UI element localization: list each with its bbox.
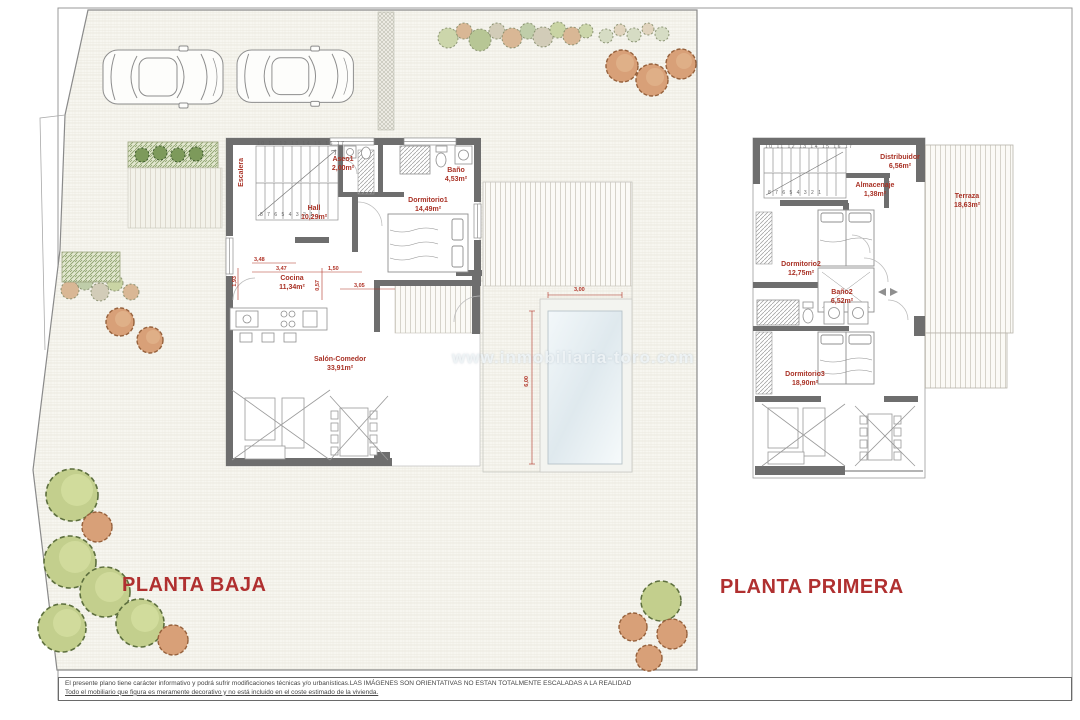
- footer-disclaimer-box: El presente plano tiene carácter informa…: [58, 677, 1072, 701]
- dim-label: 3,47: [276, 266, 287, 272]
- room-area: 6,56m²: [868, 162, 932, 171]
- stair-numbers-top-first: 10 11 12 13 14 15 16 17: [765, 144, 853, 150]
- room-label-bano: Baño 4,53m²: [428, 166, 484, 184]
- room-area: 2,00m²: [316, 164, 370, 173]
- dim-label: 1,93: [232, 276, 238, 287]
- room-area: 6,52m²: [814, 297, 870, 306]
- room-label-dormitorio2: Dormitorio2 12,75m²: [768, 260, 834, 278]
- room-area: 11,34m²: [262, 283, 322, 292]
- room-area: 4,53m²: [428, 175, 484, 184]
- room-area: 1,38m²: [844, 190, 906, 199]
- footer-line-2: Todo el mobiliario que figura es meramen…: [65, 689, 1071, 698]
- watermark: www.inmobiliaria-toro.com: [452, 348, 695, 368]
- stair-numbers-top-ground: 10 11 12 13 14 15 16 17: [257, 141, 345, 147]
- room-area: 12,75m²: [768, 269, 834, 278]
- room-area: 18,90m²: [772, 379, 838, 388]
- pool-length-dim: 6,00: [524, 376, 530, 387]
- room-name: Salón-Comedor: [294, 355, 386, 364]
- room-name: Dormitorio1: [390, 196, 466, 205]
- room-area: 14,49m²: [390, 205, 466, 214]
- title-planta-baja: PLANTA BAJA: [122, 574, 266, 597]
- room-name: Baño2: [814, 288, 870, 297]
- room-label-salon: Salón-Comedor 33,91m²: [294, 355, 386, 373]
- dim-label: 0,57: [315, 280, 321, 291]
- room-label-aseo: Aseo1 2,00m²: [316, 155, 370, 173]
- footer-line-1: El presente plano tiene carácter informa…: [65, 680, 1071, 689]
- room-area: 33,91m²: [294, 364, 386, 373]
- dim-label: 1,50: [328, 266, 339, 272]
- room-name: Dormitorio3: [772, 370, 838, 379]
- title-planta-primera: PLANTA PRIMERA: [720, 576, 904, 599]
- room-label-terraza: Terraza 18,63m²: [934, 192, 1000, 210]
- room-label-bano2: Baño2 6,52m²: [814, 288, 870, 306]
- room-name: Aseo1: [316, 155, 370, 164]
- room-label-almacenaje: Almacenaje 1,38m²: [844, 181, 906, 199]
- room-name: Baño: [428, 166, 484, 175]
- room-label-dormitorio3: Dormitorio3 18,90m²: [772, 370, 838, 388]
- room-label-escalera: Escalera: [238, 158, 245, 187]
- dim-label: 3,05: [354, 283, 365, 289]
- stair-numbers-bottom-first: 8 7 6 5 4 3 2 1: [768, 190, 822, 196]
- dim-label: 3,48: [254, 257, 265, 263]
- room-name: Dormitorio2: [768, 260, 834, 269]
- pool-width-dim: 3,00: [574, 287, 585, 293]
- floor-plan-sheet: Escalera Aseo1 2,00m² Baño 4,53m² Dormit…: [0, 0, 1080, 720]
- room-name: Cocina: [262, 274, 322, 283]
- stair-numbers-bottom-ground: 8 7 6 5 4 3 2 1: [260, 212, 314, 218]
- room-name: Distribuidor: [868, 153, 932, 162]
- room-label-dormitorio1: Dormitorio1 14,49m²: [390, 196, 466, 214]
- room-name: Terraza: [934, 192, 1000, 201]
- room-area: 18,63m²: [934, 201, 1000, 210]
- room-label-distribuidor: Distribuidor 6,56m²: [868, 153, 932, 171]
- room-name: Almacenaje: [844, 181, 906, 190]
- room-label-cocina: Cocina 11,34m²: [262, 274, 322, 292]
